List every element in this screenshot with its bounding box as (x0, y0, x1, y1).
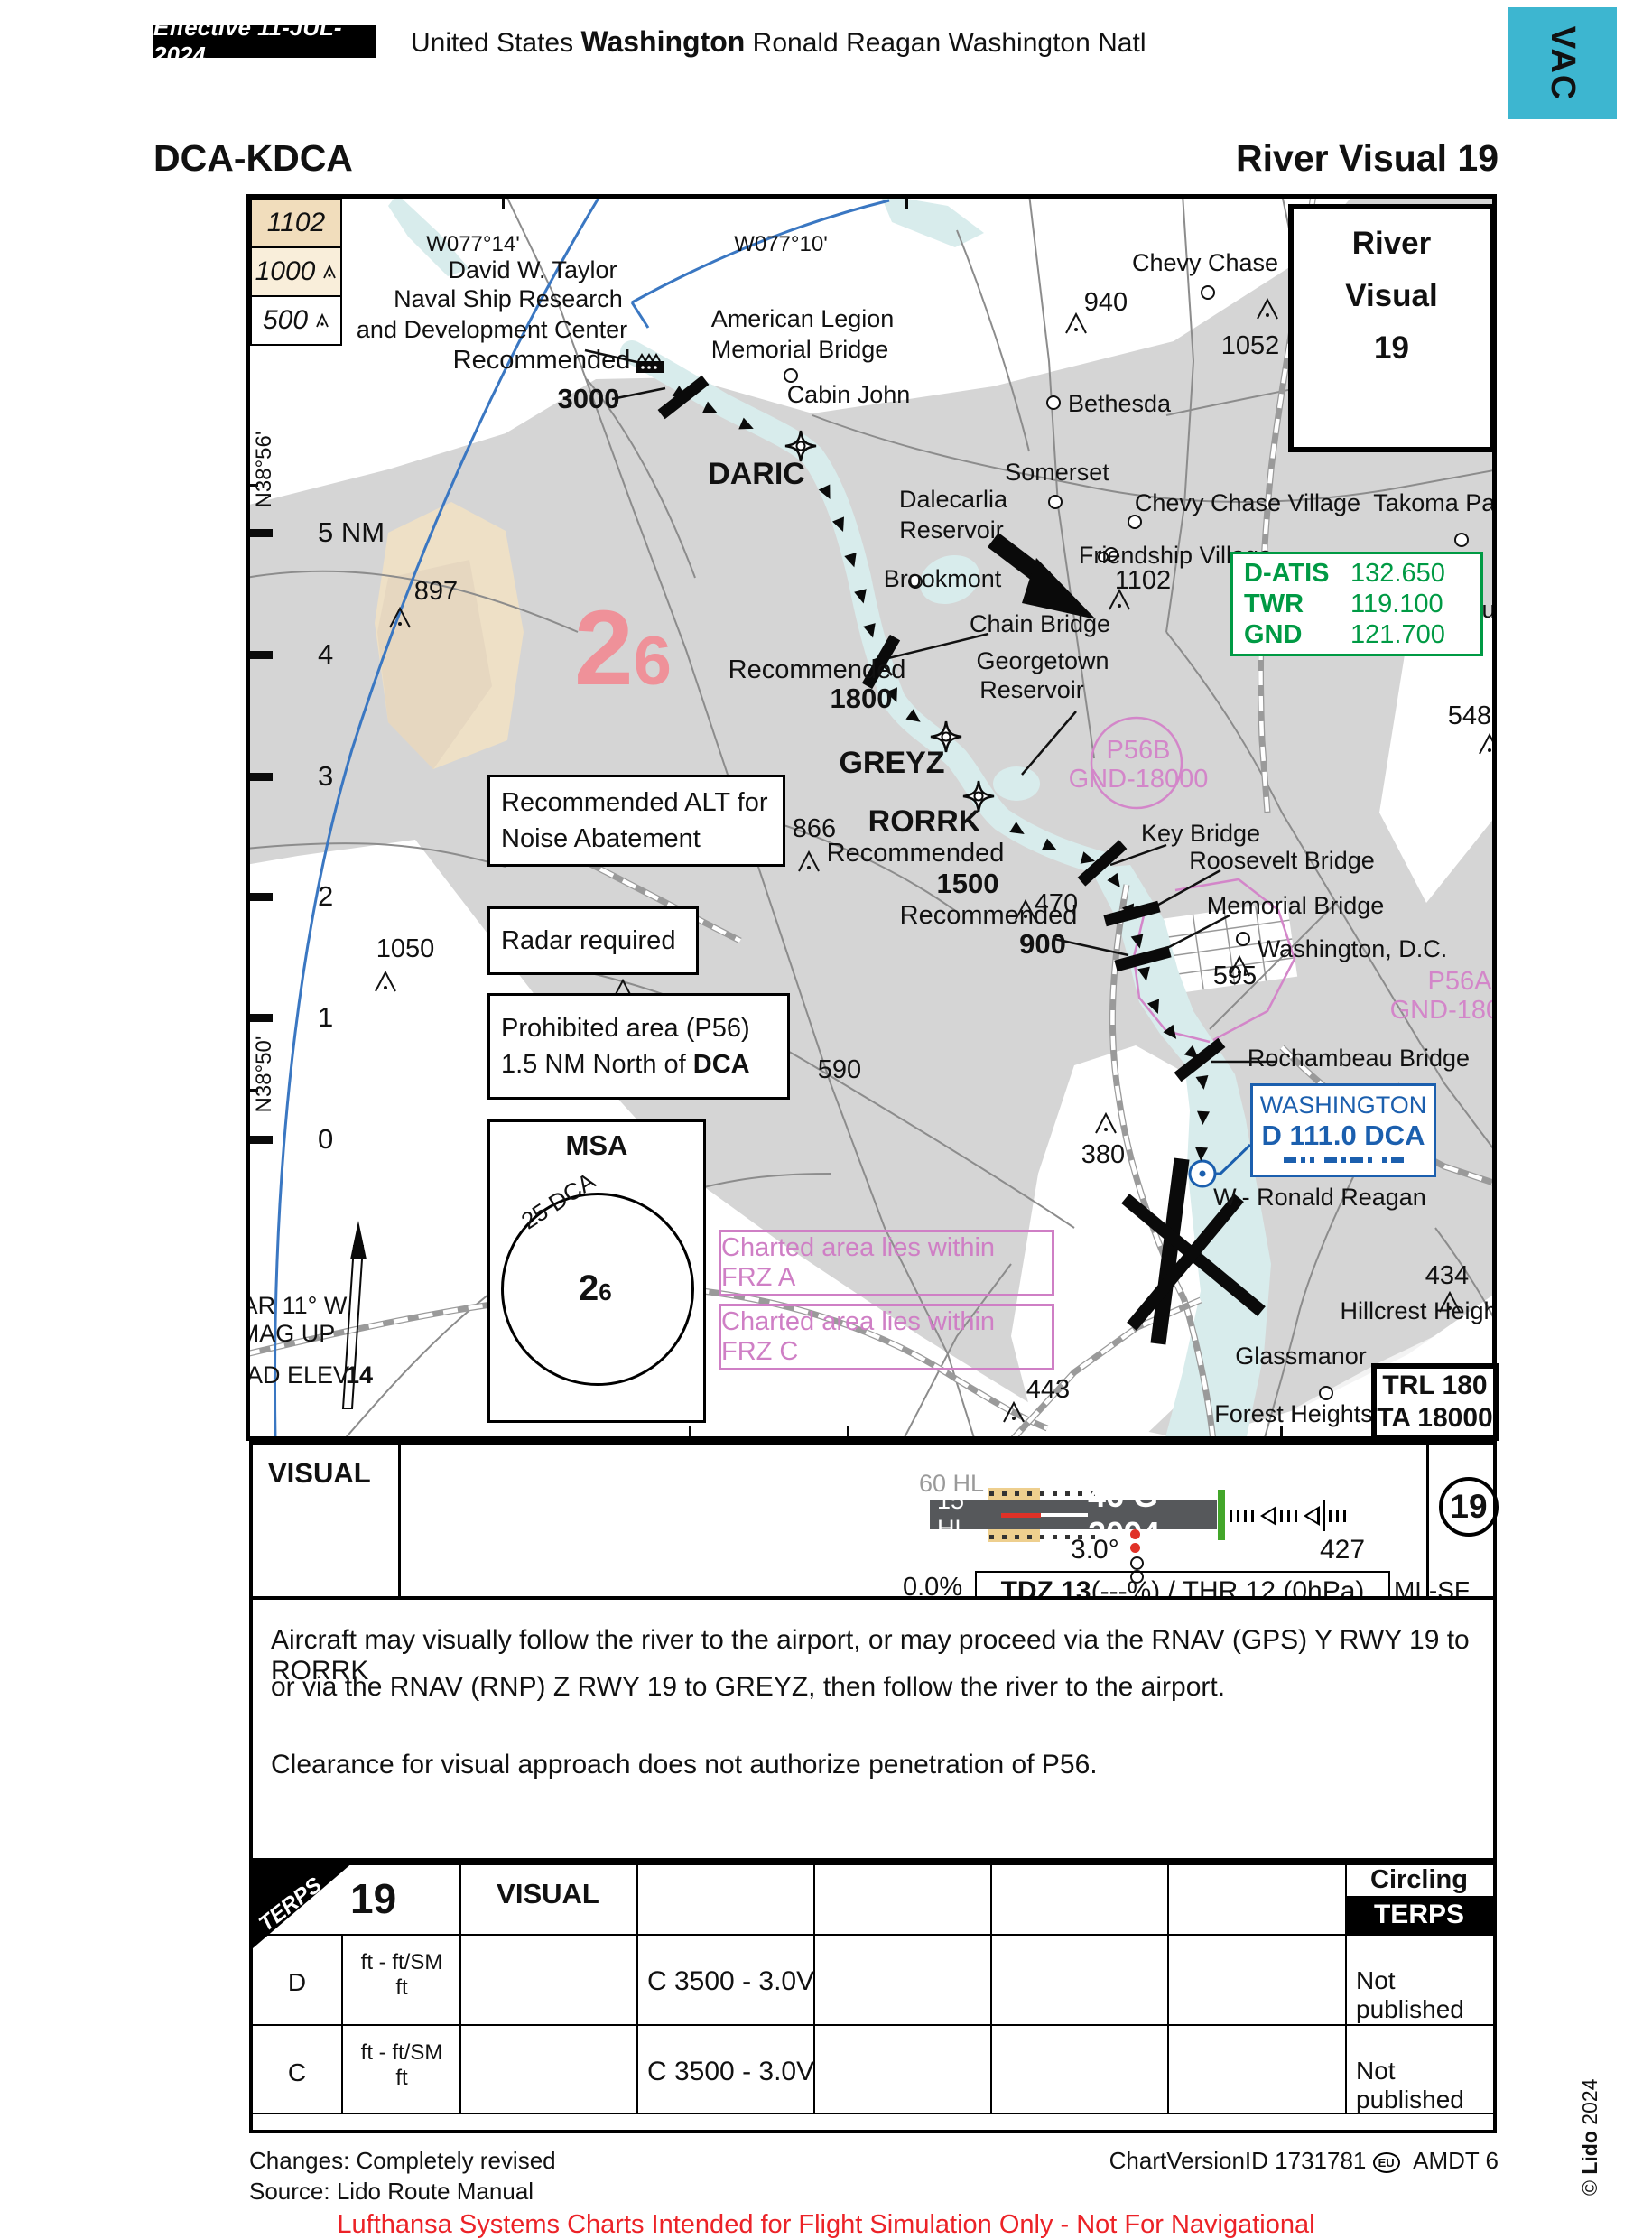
source-note: Source: Lido Route Manual (249, 2178, 534, 2206)
map-label-reagan: W.- Ronald Reagan (1213, 1184, 1426, 1211)
morse-code (1253, 1157, 1434, 1163)
town-circle-icon (1049, 496, 1062, 508)
vor-freq-ident: D 111.0 DCA (1253, 1119, 1434, 1152)
map-label-takoma-park: Takoma Park (1373, 489, 1497, 516)
title-airport: Ronald Reagan Washington Natl (745, 28, 1146, 58)
comms-row: D-ATIS132.650 (1244, 558, 1470, 589)
comms-gnd-freq: 121.700 (1350, 620, 1445, 650)
cat-c-circling: Not published (1356, 2057, 1493, 2114)
title-city: Washington (580, 25, 745, 58)
terps-band: TERPS (1345, 1896, 1493, 1934)
cat-c-minima: C 3500 - 3.0V (647, 2057, 814, 2087)
map-label-p56a-1: P56A (1428, 967, 1493, 996)
trl-value: TRL 180 (1377, 1370, 1493, 1402)
runway-bar: 15 HL 46 G 2094 (930, 1500, 1217, 1529)
map-label-roosevelt-bridge: Roosevelt Bridge (1189, 847, 1375, 874)
description-line3: Clearance for visual approach does not a… (271, 1750, 1471, 1780)
map-label-taylor-1: David W. Taylor (448, 256, 617, 283)
description-line2: or via the RNAV (RNP) Z RWY 19 to GREYZ,… (271, 1672, 1471, 1703)
comms-twr-label: TWR (1244, 590, 1350, 619)
map-label-brookmont: Brookmont (884, 565, 1002, 592)
effective-date: Effective 11-JUL-2024 (153, 14, 376, 70)
prohibited-area-note-box: Prohibited area (P56) 1.5 NM North of DC… (487, 993, 790, 1100)
cat-c: C (253, 2058, 341, 2087)
comms-datis-label: D-ATIS (1244, 559, 1350, 589)
amdt-number: AMDT 6 (1413, 2147, 1499, 2174)
cat-d-minima: C 3500 - 3.0V (647, 1966, 814, 1997)
map-label-washington-dc: Washington, D.C. (1258, 935, 1448, 962)
trl-ta-box: TRL 180 TA 18000 (1371, 1363, 1499, 1441)
chart-page: Effective 11-JUL-2024 United States Wash… (0, 0, 1652, 2239)
profile-divider (398, 1445, 401, 1596)
map-label-elev-1050: 1050 (376, 934, 435, 963)
map-label-georgetown-2: Reservoir (979, 676, 1084, 703)
map-label-ad-elev-val: 14 (346, 1361, 373, 1389)
effective-date-badge: Effective 11-JUL-2024 (153, 25, 376, 58)
legend-1000: 1000 (255, 256, 316, 287)
comms-box: D-ATIS132.650 TWR119.100 GND121.700 (1230, 552, 1483, 656)
comms-twr-freq: 119.100 (1350, 590, 1443, 619)
inset-line2: Visual (1294, 278, 1490, 314)
hl-15-label: 15 HL (937, 1487, 990, 1543)
threshold-distance: 427 (1320, 1535, 1365, 1565)
circling-header: Circling (1345, 1865, 1493, 1895)
frz-c-box: Charted area lies within FRZ C (719, 1304, 1054, 1370)
white-segment (1041, 1513, 1088, 1517)
map-label-tick-4: 4 (318, 638, 333, 670)
vac-tab-label: VAC (1543, 25, 1582, 100)
map-label-rec1800-a: Recommended (729, 655, 906, 684)
map-label-lat-n3856: N38°56' (252, 432, 276, 508)
changes-note: Changes: Completely revised (249, 2147, 556, 2175)
msa-altitude: 26 (579, 1268, 612, 1309)
vac-tab[interactable]: VAC (1508, 7, 1617, 119)
cat-d: D (253, 1968, 341, 1997)
runway-19-circle: 19 (1439, 1477, 1499, 1537)
map-label-wpt-greyz: GREYZ (839, 746, 944, 780)
map-label-taylor-3: and Development Center (357, 316, 627, 343)
map-label-dalecarlia-2: Reservoir (899, 516, 1004, 543)
map-label-rec1800-b: 1800 (831, 683, 893, 714)
map-label-p56b-2: GND-18000 (1069, 765, 1209, 794)
map-label-elev-380: 380 (1081, 1140, 1125, 1169)
threshold-green-bar (1218, 1490, 1225, 1540)
map-label-elev-590: 590 (818, 1055, 861, 1084)
map-label-lon-w07710: W077°10' (734, 232, 828, 256)
noise-note-line1: Recommended ALT for (501, 785, 772, 821)
map-label-rec1500-a: Recommended (827, 839, 1005, 868)
red-segment (1001, 1513, 1041, 1518)
radar-note: Radar required (501, 923, 685, 959)
map-label-tick-1: 1 (318, 1001, 333, 1033)
frz-a-text: Charted area lies within FRZ A (721, 1233, 1052, 1293)
legend-row: 500 (252, 297, 340, 344)
map-label-somerset: Somerset (1005, 459, 1109, 486)
radar-note-box: Radar required (487, 906, 699, 975)
map-label-elev-940: 940 (1084, 288, 1128, 317)
glide-slope-angle: 3.0° (1071, 1535, 1119, 1565)
town-circle-icon (1128, 516, 1141, 528)
prohibited-note-line1: Prohibited area (P56) (501, 1010, 776, 1046)
map-label-p56b-1: P56B (1107, 736, 1171, 765)
inset-procedure-title: River Visual 19 (1288, 204, 1495, 452)
map-label-wpt-rorrk: RORRK (868, 804, 981, 839)
simulation-disclaimer: Lufthansa Systems Charts Intended for Fl… (325, 2210, 1327, 2239)
cat-d-circling: Not published (1356, 1966, 1493, 2024)
cat-d-units: ft - ft/SMft (343, 1950, 460, 2001)
legend-1102: 1102 (267, 208, 326, 238)
comms-gnd-label: GND (1244, 620, 1350, 650)
airport-ident: DCA-KDCA (153, 137, 353, 180)
map-label-elev-1102: 1102 (1115, 566, 1171, 595)
peak-icon (315, 313, 329, 329)
frz-a-box: Charted area lies within FRZ A (719, 1230, 1054, 1296)
copyright: © Lido 2024 (1578, 2079, 1602, 2196)
msa-title: MSA (490, 1129, 703, 1162)
map-label-tick-0: 0 (318, 1123, 333, 1155)
frz-c-text: Charted area lies within FRZ C (721, 1307, 1052, 1367)
noise-note-line2: Noise Abatement (501, 821, 772, 857)
map-label-chain-bridge: Chain Bridge (970, 610, 1110, 637)
elevation-legend: 1102 1000 500 (250, 198, 342, 346)
chart-title: United States Washington Ronald Reagan W… (411, 25, 1146, 59)
map-label-rec1500-b: 1500 (937, 868, 999, 899)
map-label-dalecarlia-1: Dalecarlia (899, 486, 1008, 513)
map-label-elev-548: 548 (1448, 701, 1491, 730)
legend-500: 500 (263, 305, 308, 336)
map-label-elev-897: 897 (414, 577, 458, 606)
map-label-lat-n3850: N38°50' (252, 1036, 276, 1113)
map-label-amlegion-2: Memorial Bridge (711, 336, 889, 363)
map-label-p56a-2: GND-18000 (1390, 996, 1497, 1025)
town-circle-icon (784, 369, 797, 382)
procedure-name: River Visual 19 (903, 137, 1499, 180)
town-circle-icon (1320, 1387, 1332, 1399)
map-label-rec3000-a: Recommended (453, 346, 631, 375)
map-label-chevy-chase: Chevy Chase (1132, 249, 1278, 276)
map-label-rec900-a: Recommended (900, 901, 1078, 930)
chart-version: ChartVersionID 1731781 EU AMDT 6 (903, 2147, 1499, 2175)
light-dots-top (989, 1491, 1095, 1496)
comms-datis-freq: 132.650 (1350, 559, 1445, 589)
comms-row: GND121.700 (1244, 619, 1470, 650)
minima-type: VISUAL (459, 1878, 636, 1910)
vor-name: WASHINGTON (1253, 1092, 1434, 1119)
minima-runway: 19 (350, 1874, 396, 1923)
map-label-cabin-john: Cabin John (787, 381, 911, 408)
map-label-rochambeau-bridge: Rochambeau Bridge (1248, 1045, 1470, 1072)
legend-row: 1102 (252, 200, 340, 248)
map-label-wpt-daric: DARIC (708, 457, 805, 491)
vor-ident-box: WASHINGTON D 111.0 DCA (1250, 1083, 1436, 1177)
cat-c-units: ft - ft/SMft (343, 2040, 460, 2091)
noise-note-box: Recommended ALT for Noise Abatement (487, 775, 785, 867)
town-circle-icon (1455, 534, 1468, 546)
map-label-elev-1052: 1052 (1221, 331, 1280, 360)
map-label-elev-434: 434 (1425, 1261, 1469, 1290)
ta-value: TA 18000 (1377, 1402, 1493, 1435)
map-label-var-1: VAR 11° W (246, 1292, 348, 1319)
profile-visual-label: VISUAL (268, 1457, 371, 1490)
map-label-rec3000-b: 3000 (558, 383, 620, 414)
map-label-key-bridge: Key Bridge (1141, 820, 1260, 847)
map-label-amlegion-1: American Legion (711, 305, 895, 332)
inset-line3: 19 (1294, 330, 1490, 367)
map-label-lon-w07714: W077°14' (426, 232, 520, 256)
map-label-tick-3: 3 (318, 760, 333, 792)
prohibited-note-line2: 1.5 NM North of DCA (501, 1046, 776, 1082)
runway-26-map-number: 26 (574, 603, 672, 707)
map-label-forest-heights: Forest Heights (1214, 1400, 1373, 1427)
map-label-glassmanor: Glassmanor (1235, 1342, 1367, 1370)
map-label-taylor-2: Naval Ship Research (394, 285, 623, 312)
map-label-elev-595: 595 (1213, 962, 1257, 990)
town-circle-icon (1237, 933, 1249, 945)
map-label-georgetown-1: Georgetown (976, 647, 1109, 674)
map-label-rec900-b: 900 (1019, 928, 1066, 960)
minima-table: TERPS 19 VISUAL Circling TERPS C ft - ft… (249, 1858, 1497, 2133)
map-label-elev-443: 443 (1026, 1375, 1070, 1404)
town-circle-icon (1202, 286, 1214, 299)
msa-box: MSA 25 DCA 26 (487, 1119, 706, 1423)
map-label-ad-elev: AD ELEV (246, 1361, 349, 1389)
map-label-memorial-bridge: Memorial Bridge (1207, 892, 1385, 919)
map-label-hillcrest-heights: Hillcrest Heights (1340, 1297, 1497, 1324)
peak-icon (322, 265, 337, 280)
legend-row: 1000 (252, 248, 340, 297)
comms-row: TWR119.100 (1244, 589, 1470, 619)
profile-divider-right (1426, 1445, 1429, 1596)
inset-line1: River (1294, 226, 1490, 262)
map-label-bethesda: Bethesda (1068, 390, 1172, 417)
map-label-var-2: MAG UP (246, 1320, 335, 1347)
map-label-tick-2: 2 (318, 880, 333, 912)
eu-roundel-icon: EU (1373, 2152, 1400, 2173)
map-label-tick-5nm: 5 NM (318, 516, 385, 548)
map-label-chevy-chase-village: Chevy Chase Village (1135, 489, 1360, 516)
title-country: United States (411, 28, 580, 58)
town-circle-icon (1047, 396, 1060, 409)
